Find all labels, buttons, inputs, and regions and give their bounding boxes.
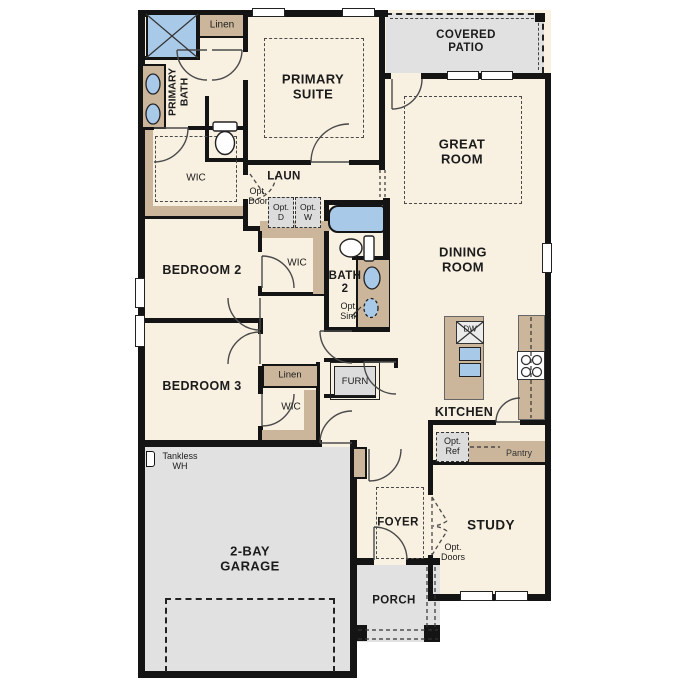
window [252, 8, 285, 17]
porch-post [352, 625, 367, 641]
kitchen-sink-icon [459, 347, 481, 361]
wall [428, 555, 433, 597]
tankless-water-heater-icon [146, 451, 155, 467]
opt-doors-label: Opt. Doors [441, 542, 465, 562]
wall [258, 318, 263, 334]
floor-plan: Opt. D Opt. W Opt. Ref FURN [0, 0, 687, 687]
wic-primary-shelf-edge [155, 136, 237, 202]
wall [138, 440, 322, 447]
optional-dryer-box: Opt. D [268, 197, 294, 228]
bedroom3-label: BEDROOM 3 [162, 379, 241, 393]
wic-primary-shelf [145, 130, 153, 216]
opt-door-label: Opt. Door [248, 186, 268, 206]
primary-bath-label: PRIMARY BATH [167, 68, 191, 116]
furnace-box: FURN [334, 366, 376, 396]
kitchen-sink-icon [459, 363, 481, 377]
wic-primary-label: WIC [186, 172, 205, 183]
primary-vanity [141, 64, 166, 129]
optional-washer-box: Opt. W [295, 197, 321, 228]
primary-suite-label: PRIMARY SUITE [282, 72, 344, 101]
garage-door-outline [165, 598, 335, 672]
window [460, 591, 493, 601]
furnace-label: FURN [342, 376, 368, 387]
optional-refrigerator-box: Opt. Ref [436, 432, 469, 462]
wall [430, 420, 496, 425]
window [481, 71, 513, 80]
porch-label: PORCH [372, 595, 416, 608]
cooktop-icon [517, 351, 545, 380]
wall [138, 347, 145, 678]
bathtub-icon [328, 205, 385, 233]
wall [545, 273, 551, 600]
window [447, 71, 479, 80]
window [542, 243, 552, 273]
window [495, 591, 528, 601]
foyer-label: FOYER [377, 517, 419, 530]
window [342, 8, 375, 17]
foyer-closet [352, 447, 367, 479]
porch-post [424, 625, 440, 642]
wall [428, 465, 433, 495]
bath2-label: BATH 2 [329, 270, 362, 296]
wic-primary-shelf [145, 206, 243, 216]
patio-post [535, 13, 545, 22]
wall [138, 10, 145, 278]
wall [428, 420, 433, 465]
wall [138, 308, 145, 315]
wall [188, 126, 248, 130]
wall [520, 420, 545, 425]
wall [243, 160, 311, 165]
wall [379, 10, 385, 170]
laundry-label: LAUN [267, 171, 301, 184]
linen-hall-label: Linen [278, 371, 301, 382]
linen-top-label: Linen [210, 19, 234, 30]
wall [394, 358, 398, 368]
window [135, 315, 145, 347]
wall [138, 318, 262, 323]
opt-sink-label: Opt. Sink [340, 301, 358, 321]
window [135, 278, 145, 308]
wall [545, 73, 551, 245]
dining-room-label: DINING ROOM [439, 245, 487, 274]
wic-bed3-label: WIC [281, 401, 300, 412]
great-room-label: GREAT ROOM [439, 137, 486, 166]
garage-label: 2-BAY GARAGE [220, 544, 279, 573]
wall [243, 165, 248, 175]
bedroom2-label: BEDROOM 2 [162, 263, 241, 277]
covered-patio-label: COVERED PATIO [436, 29, 496, 55]
wic-bed3-shelf [262, 430, 306, 440]
dishwasher-label: DW [463, 326, 476, 335]
wall [349, 160, 383, 165]
study-label: STUDY [467, 517, 515, 532]
tankless-wh-label: Tankless WH [162, 451, 197, 471]
wall [324, 358, 398, 362]
kitchen-label: KITCHEN [435, 405, 493, 419]
wic-bed2-shelf [313, 236, 324, 294]
wall [138, 671, 357, 678]
wic-bed2-label: WIC [287, 257, 306, 268]
wall [324, 327, 390, 332]
pantry-label: Pantry [506, 448, 532, 458]
wall [243, 80, 248, 165]
shower-icon [146, 13, 198, 59]
wall [406, 558, 440, 565]
wall [350, 558, 374, 565]
